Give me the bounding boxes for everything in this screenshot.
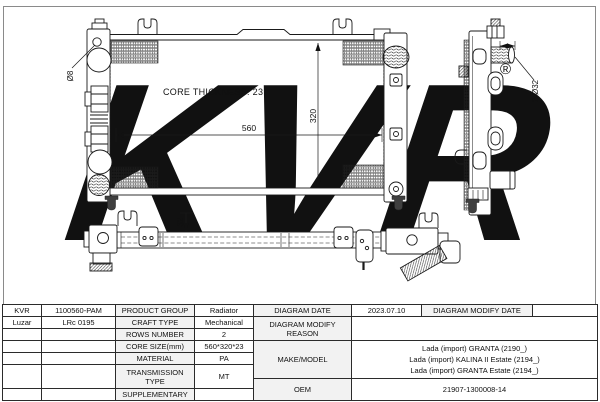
part-number-cell — [41, 364, 116, 389]
pipe-bottom — [490, 171, 515, 189]
diagram-modify-reason-value — [351, 316, 598, 341]
dim-hole-label: Ø8 — [66, 70, 75, 81]
row-value — [194, 388, 254, 401]
oem-label: OEM — [253, 378, 352, 401]
inlet-port-circle — [87, 48, 111, 72]
make-model-line: Lada (import) KALINA II Estate (2194_) — [409, 354, 539, 365]
fins-bottom-right — [343, 165, 384, 188]
oem-value: 21907-1300008-14 — [351, 378, 598, 401]
make-model-value: Lada (import) GRANTA (2190_) Lada (impor… — [351, 340, 598, 379]
dim-bar-label: 32 — [176, 217, 185, 226]
dim-width-label: 560 — [242, 123, 256, 133]
bottom-view-bar — [117, 232, 396, 248]
technical-drawing: KVR ® — [0, 0, 600, 304]
diagram-modify-reason-label: DIAGRAM MODIFY REASON — [253, 316, 352, 341]
bar-bracket-a — [139, 227, 158, 246]
make-model-line: Lada (import) GRANTA Estate (2194_) — [410, 365, 538, 376]
pipe-top — [491, 47, 515, 63]
part-number-cell — [41, 388, 116, 401]
side-hatched-tab — [459, 66, 468, 77]
make-model-line: Lada (import) GRANTA (2190_) — [422, 343, 527, 354]
mount-bracket-top-right — [333, 19, 352, 34]
brand-cell — [2, 388, 42, 401]
core-edge-fins — [464, 40, 469, 210]
radiator-diagram-page: KVR ® — [0, 0, 600, 402]
brand-cell — [2, 364, 42, 389]
drain-cap — [89, 175, 110, 196]
mount-bracket-top-left — [138, 19, 157, 34]
row-value: MT — [194, 364, 254, 389]
small-hole — [93, 38, 101, 46]
bottom-bar — [104, 188, 405, 195]
fins-bottom-left — [111, 167, 158, 188]
fins-top-left — [111, 41, 158, 63]
row-label: SUPPLEMENTARY — [115, 388, 195, 401]
dim-height-label: 320 — [308, 109, 318, 123]
filler-cap — [383, 46, 409, 68]
make-model-label: MAKE/MODEL — [253, 340, 352, 379]
outlet-port-circle — [88, 150, 112, 174]
core-thickness-label: CORE THICKNESS: 23 — [163, 87, 263, 97]
row-label: TRANSMISSION TYPE — [115, 364, 195, 389]
bar-bracket-b — [334, 227, 353, 248]
fins-top-right — [343, 41, 384, 65]
dim-pipe-label: 2-Ø32 — [531, 79, 540, 102]
